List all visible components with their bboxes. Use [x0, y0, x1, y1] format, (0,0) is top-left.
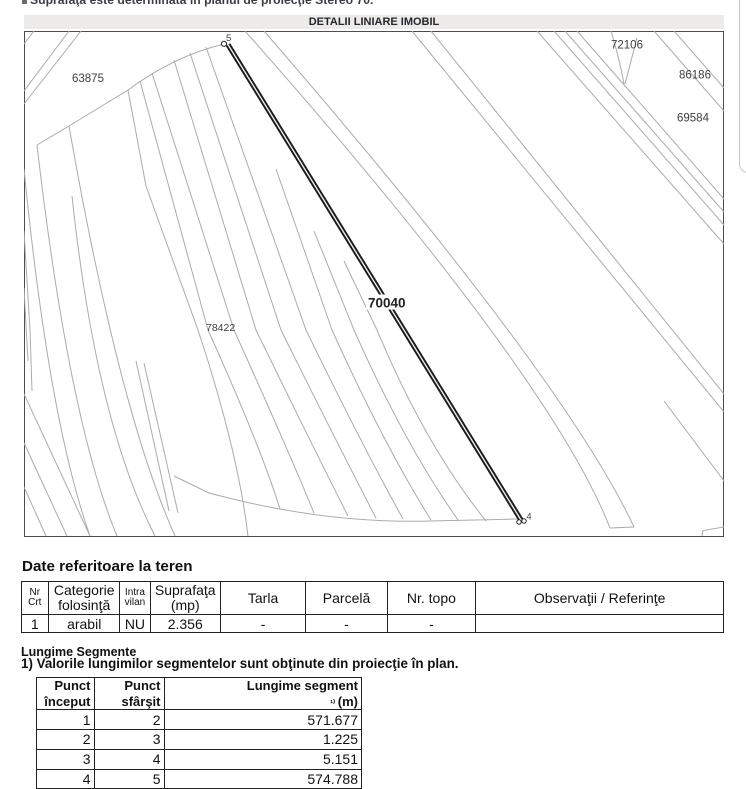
svg-text:69584: 69584: [677, 112, 710, 124]
svg-text:63875: 63875: [72, 73, 104, 85]
svg-text:86186: 86186: [679, 69, 711, 81]
svg-text:72106: 72106: [611, 39, 643, 51]
svg-text:5: 5: [226, 33, 231, 44]
svg-text:4: 4: [527, 511, 532, 521]
svg-text:70040: 70040: [368, 295, 406, 310]
svg-text:78422: 78422: [206, 322, 235, 334]
